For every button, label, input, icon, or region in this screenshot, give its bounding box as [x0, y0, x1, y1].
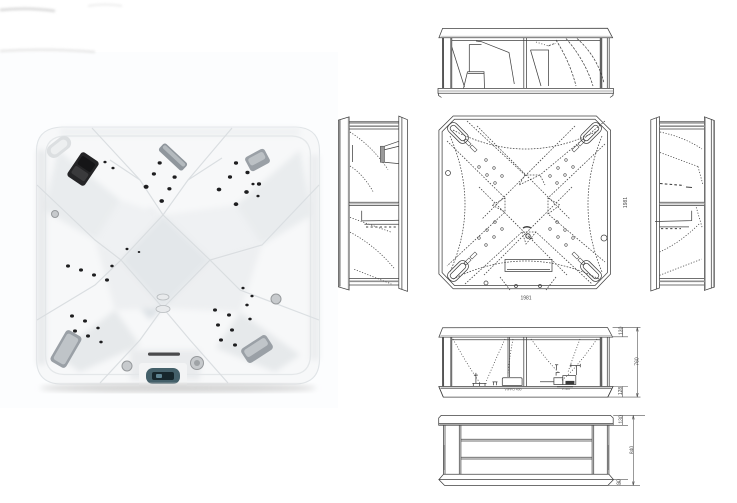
svg-text:1981: 1981	[520, 296, 531, 302]
svg-text:90: 90	[617, 479, 623, 485]
svg-text:P-400: P-400	[562, 387, 570, 391]
svg-text:1981: 1981	[623, 197, 629, 208]
svg-text:130: 130	[619, 415, 625, 424]
svg-text:760: 760	[635, 357, 641, 366]
svg-text:VIPPO 400: VIPPO 400	[505, 388, 522, 392]
svg-text:128: 128	[618, 387, 624, 396]
svg-text:840: 840	[630, 446, 636, 455]
svg-text:130: 130	[619, 326, 625, 335]
